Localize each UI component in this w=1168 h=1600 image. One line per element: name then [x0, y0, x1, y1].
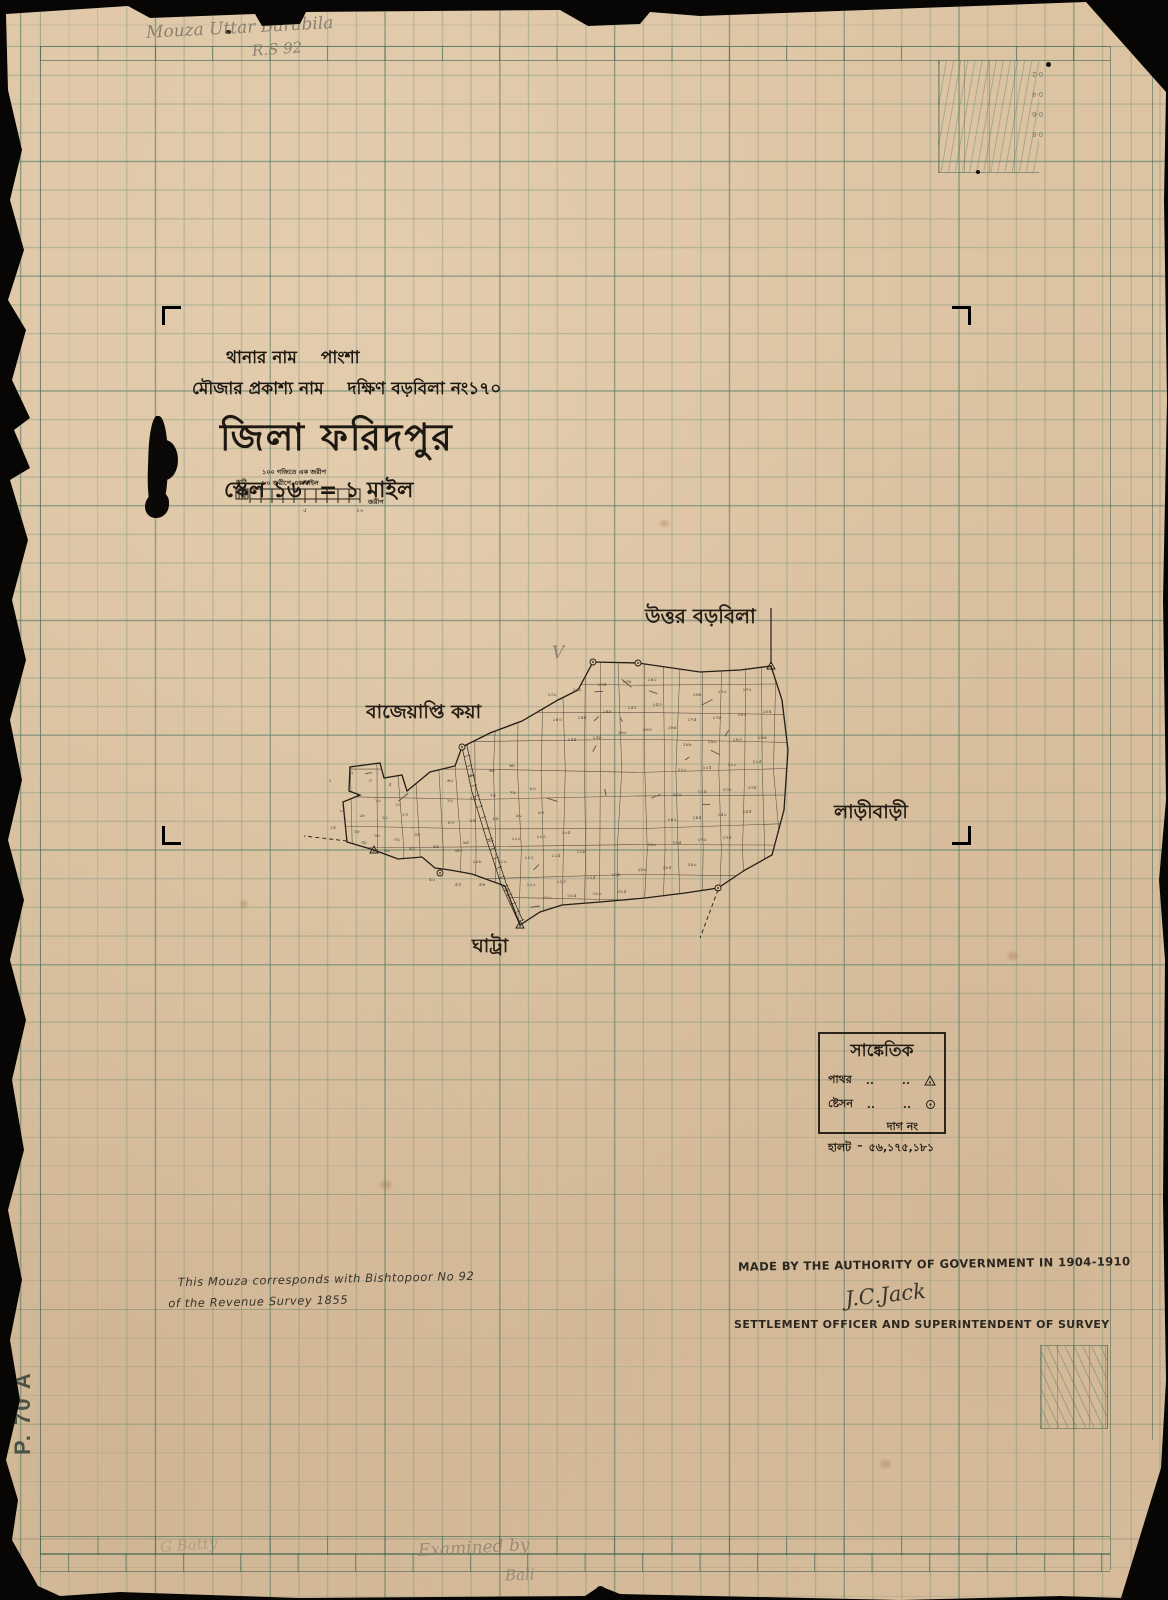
thana-value: পাংশা — [321, 345, 360, 373]
top-ledger-strip — [40, 46, 1110, 61]
svg-text:১৬৩: ১৬৩ — [642, 728, 652, 733]
svg-text:৪৮: ৪৮ — [455, 849, 462, 854]
svg-text:৬৩: ৬৩ — [469, 774, 476, 779]
scale-tick-5: ৫ — [303, 507, 307, 514]
svg-text:১৯৬: ১৯৬ — [757, 736, 767, 741]
svg-text:১৫০: ১৫০ — [627, 706, 636, 711]
revenue-survey-note: This Mouza corresponds with Bishtopoor N… — [178, 1269, 475, 1310]
scale-left-label: কাঠি — [235, 477, 248, 486]
svg-text:২০০: ২০০ — [677, 768, 686, 773]
svg-text:২৮: ২৮ — [354, 830, 361, 835]
svg-text:১: ১ — [328, 779, 331, 784]
svg-text:২২৫: ২২৫ — [697, 790, 706, 795]
svg-text:৩: ৩ — [368, 779, 372, 784]
svg-text:৩০৫: ৩০৫ — [567, 894, 576, 899]
diagonal-scale-bottom-right — [1040, 1345, 1108, 1429]
svg-text:১১২: ১১২ — [524, 856, 533, 861]
sheet-number: P. 70 A — [10, 1371, 36, 1455]
scale-note-2: ৮০ জরীপে এক মাইল — [261, 477, 320, 487]
svg-text:৫৬: ৫৬ — [479, 883, 486, 888]
svg-text:২০৫: ২০৫ — [702, 766, 711, 771]
svg-text:১৩০: ১৩০ — [547, 693, 556, 698]
svg-text:১৪৫: ১৪৫ — [577, 716, 586, 721]
svg-text:২৫০: ২৫০ — [717, 813, 726, 818]
svg-text:৯০: ৯০ — [516, 814, 522, 819]
svg-text:৩০: ৩০ — [374, 834, 380, 839]
foxing-spot — [880, 1460, 891, 1468]
svg-text:২৬৫: ২৬৫ — [672, 841, 681, 846]
svg-text:৭০: ৭০ — [447, 799, 453, 804]
svg-text:৮৩: ৮৩ — [448, 821, 455, 826]
svg-text:২৫৫: ২৫৫ — [742, 810, 751, 815]
mouza-value: দক্ষিণ বড়বিলা নং১৭০ — [348, 376, 502, 404]
circle-dot-icon — [925, 1099, 936, 1110]
svg-text:৩০০: ৩০০ — [542, 896, 551, 901]
svg-text:১০০: ১০০ — [511, 837, 520, 842]
svg-text:৪৫: ৪৫ — [433, 845, 439, 850]
svg-text:২৫: ২৫ — [330, 826, 336, 831]
ink-speck — [976, 170, 980, 174]
diagonal-scale-label: 0·8 — [1032, 128, 1043, 140]
svg-text:২৩: ২৩ — [402, 813, 409, 818]
svg-text:১০৫: ১০৫ — [561, 831, 570, 836]
svg-text:১৩২: ১৩২ — [572, 688, 581, 693]
trim-mark-top-left — [162, 306, 181, 325]
legend-leader: .. — [889, 1098, 925, 1111]
svg-text:১৬০: ১৬০ — [617, 731, 626, 736]
svg-text:১৪০: ১৪০ — [647, 678, 656, 683]
ink-blot — [152, 440, 178, 480]
legend-halt-value: ৫৬,১৭৫,১৮১ — [869, 1139, 935, 1158]
dashed-boundaries — [304, 836, 718, 938]
legend-label-station: ষ্টেসন — [828, 1095, 853, 1114]
scanned-map-sheet: 0·2 0·4 0·6 0·8 Mouza Uttar Barabila R.S… — [0, 0, 1168, 1600]
neighbor-east: লাড়ীবাড়ী — [834, 798, 908, 830]
svg-text:৩৫: ৩৫ — [414, 833, 420, 838]
neighbor-north: উত্তর বড়বিলা — [645, 602, 756, 635]
neighbor-west: বাজেয়াপ্তি কয়া — [366, 698, 481, 730]
trim-mark-bottom-right — [952, 826, 971, 845]
legend-leader: .. — [888, 1074, 924, 1087]
svg-text:১২০: ১২০ — [526, 883, 535, 888]
mouza-label: মৌজার প্রকাশ্য নাম — [192, 376, 324, 404]
svg-text:১০৮: ১০৮ — [472, 860, 482, 865]
svg-text:৪২: ৪২ — [409, 847, 415, 852]
ink-speck — [1046, 62, 1051, 67]
svg-text:৮৫: ৮৫ — [470, 819, 476, 824]
svg-text:২৪৫: ২৪৫ — [692, 816, 701, 821]
svg-text:৬০: ৬০ — [447, 779, 453, 784]
diagonal-scale-top-right — [938, 60, 1039, 173]
svg-text:১৪৩: ১৪৩ — [552, 718, 562, 723]
foxing-spot — [380, 1180, 392, 1189]
svg-text:১৭৫: ১৭৫ — [687, 718, 696, 723]
legend-leader: .. — [852, 1074, 888, 1087]
frame-line-left — [40, 46, 41, 1570]
svg-text:১৭৮: ১৭৮ — [712, 716, 722, 721]
svg-text:১১৮: ১১৮ — [576, 850, 586, 855]
diagonal-scale-label: 0·4 — [1032, 88, 1043, 100]
trim-mark-top-right — [952, 306, 971, 325]
scale-ruler — [236, 489, 360, 503]
svg-text:১৯৩: ১৯৩ — [732, 738, 742, 743]
svg-text:৫০: ৫০ — [429, 878, 435, 883]
foxing-spot — [660, 520, 669, 527]
svg-text:২১০: ২১০ — [727, 763, 736, 768]
svg-text:১০: ১০ — [375, 799, 381, 804]
svg-text:৩১০: ৩১০ — [592, 892, 601, 897]
svg-text:১৮: ১৮ — [359, 814, 366, 819]
foxing-spot — [240, 900, 248, 908]
thana-label: থানার নাম — [226, 345, 297, 373]
svg-text:১৭২: ১৭২ — [742, 688, 751, 693]
svg-text:৩৮: ৩৮ — [361, 841, 368, 846]
svg-text:১২৩: ১২৩ — [556, 880, 566, 885]
diagonal-scale-label: 0·6 — [1032, 108, 1043, 120]
svg-text:১৪৮: ১৪৮ — [602, 710, 612, 715]
svg-text:১৯০: ১৯০ — [707, 740, 716, 745]
triangle-dot-icon — [924, 1075, 936, 1086]
svg-text:২১৫: ২১৫ — [752, 760, 761, 765]
svg-text:৫৩: ৫৩ — [455, 883, 462, 888]
legend-label-pathar: পাথর — [828, 1071, 852, 1090]
pencil-note-rs: R.S 92 — [251, 38, 302, 59]
legend-halt-row: হালট – ৫৬,১৭৫,১৮১ — [828, 1139, 936, 1158]
diagonal-scale-label: 0·2 — [1032, 68, 1043, 80]
legend-box: সাঙ্কেতিক পাথর .. .. ষ্টেসন .. .. দাগ — [818, 1032, 946, 1134]
svg-text:১৮১: ১৮১ — [737, 713, 746, 718]
svg-text:১১০: ১১০ — [497, 860, 506, 865]
svg-text:১৮৪: ১৮৪ — [762, 710, 771, 715]
svg-text:২৩৫: ২৩৫ — [747, 786, 756, 791]
svg-text:৯৩: ৯৩ — [538, 811, 545, 816]
svg-text:৮০: ৮০ — [530, 787, 536, 792]
svg-text:১২৫: ১২৫ — [586, 876, 595, 881]
svg-text:২৬০: ২৬০ — [647, 843, 656, 848]
ink-speck — [596, 1586, 605, 1594]
svg-text:২২০: ২২০ — [672, 793, 681, 798]
svg-text:১৭০: ১৭০ — [717, 690, 726, 695]
svg-text:৩২: ৩২ — [394, 838, 400, 843]
svg-text:৫৮: ৫৮ — [504, 888, 511, 893]
legend-row-station: ষ্টেসন .. .. — [828, 1095, 936, 1114]
svg-text:৩১৫: ৩১৫ — [617, 890, 626, 895]
frame-line-right — [1110, 46, 1111, 1570]
svg-text:১৮৮: ১৮৮ — [682, 743, 692, 748]
officer-title: SETTLEMENT OFFICER AND SUPERINTENDENT OF… — [734, 1318, 1110, 1331]
svg-text:১২: ১২ — [395, 803, 401, 808]
svg-text:২৭৫: ২৭৫ — [722, 836, 731, 841]
legend-title: সাঙ্কেতিক — [828, 1038, 936, 1066]
svg-text:১৫৮: ১৫৮ — [592, 736, 602, 741]
svg-text:১৬৫: ১৬৫ — [667, 726, 676, 731]
svg-text:১০৩: ১০৩ — [536, 835, 546, 840]
svg-text:১৩৫: ১৩৫ — [597, 683, 606, 688]
svg-text:৯৫: ৯৫ — [463, 841, 469, 846]
svg-text:১২৮: ১২৮ — [611, 873, 621, 878]
cadastral-map: ১২৩৫৮১০১২১৫১৮২১২৩২৫২৮৩০৩২৩৫৩৮৪০৪২৪৫৪৮৫০৫… — [300, 600, 820, 960]
neighbor-south: ঘাট্রা — [472, 932, 508, 964]
svg-text:২৪০: ২৪০ — [667, 818, 676, 823]
svg-text:২৮০: ২৮০ — [637, 868, 646, 873]
svg-text:৮৮: ৮৮ — [493, 817, 500, 822]
svg-text:২৯০: ২৯০ — [687, 863, 696, 868]
foxing-spot — [1008, 952, 1018, 960]
legend-halt-sep: – — [857, 1139, 863, 1158]
svg-text:৫: ৫ — [388, 783, 391, 788]
svg-text:৭৮: ৭৮ — [510, 791, 517, 796]
svg-text:৭৩: ৭৩ — [470, 797, 477, 802]
svg-text:১১৫: ১১৫ — [551, 854, 560, 859]
legend-dag-no: দাগ নং — [828, 1118, 936, 1137]
svg-text:২৩০: ২৩০ — [722, 788, 731, 793]
frame-line-right-outer — [1152, 60, 1153, 1440]
svg-text:৪০: ৪০ — [384, 849, 390, 854]
scale-bar: কাঠি ১০০ গজিতে এক জরীপ ৮০ জরীপে এক মাইল … — [228, 462, 398, 517]
paper: 0·2 0·4 0·6 0·8 Mouza Uttar Barabila R.S… — [0, 0, 1168, 1600]
svg-text:২৭০: ২৭০ — [697, 838, 706, 843]
scale-note-1: ১০০ গজিতে এক জরীপ — [262, 466, 327, 476]
scale-tick-10: ১০ — [356, 507, 364, 514]
svg-text:২: ২ — [350, 771, 353, 776]
svg-text:১৫৩: ১৫৩ — [652, 703, 662, 708]
svg-text:২১: ২১ — [382, 816, 388, 821]
pencil-note-bali: Bali — [505, 1565, 535, 1584]
svg-text:১৩৮: ১৩৮ — [622, 680, 632, 685]
svg-text:৬৮: ৬৮ — [509, 764, 516, 769]
svg-text:৯৮: ৯৮ — [488, 839, 495, 844]
svg-text:১৫: ১৫ — [339, 809, 345, 814]
svg-text:১৫৫: ১৫৫ — [567, 738, 576, 743]
legend-row-pathar: পাথর .. .. — [828, 1071, 936, 1090]
legend-halt-label: হালট — [828, 1139, 851, 1158]
svg-text:৬৫: ৬৫ — [489, 769, 495, 774]
svg-text:৭৫: ৭৫ — [490, 794, 496, 799]
svg-text:২৮৫: ২৮৫ — [662, 866, 671, 871]
legend-leader: .. — [853, 1098, 889, 1111]
scale-right-label: জরীপ — [367, 496, 384, 506]
svg-text:১৬৮: ১৬৮ — [692, 693, 702, 698]
trim-mark-bottom-left — [162, 826, 181, 845]
bottom-ledger-strip-2 — [40, 1553, 1110, 1572]
